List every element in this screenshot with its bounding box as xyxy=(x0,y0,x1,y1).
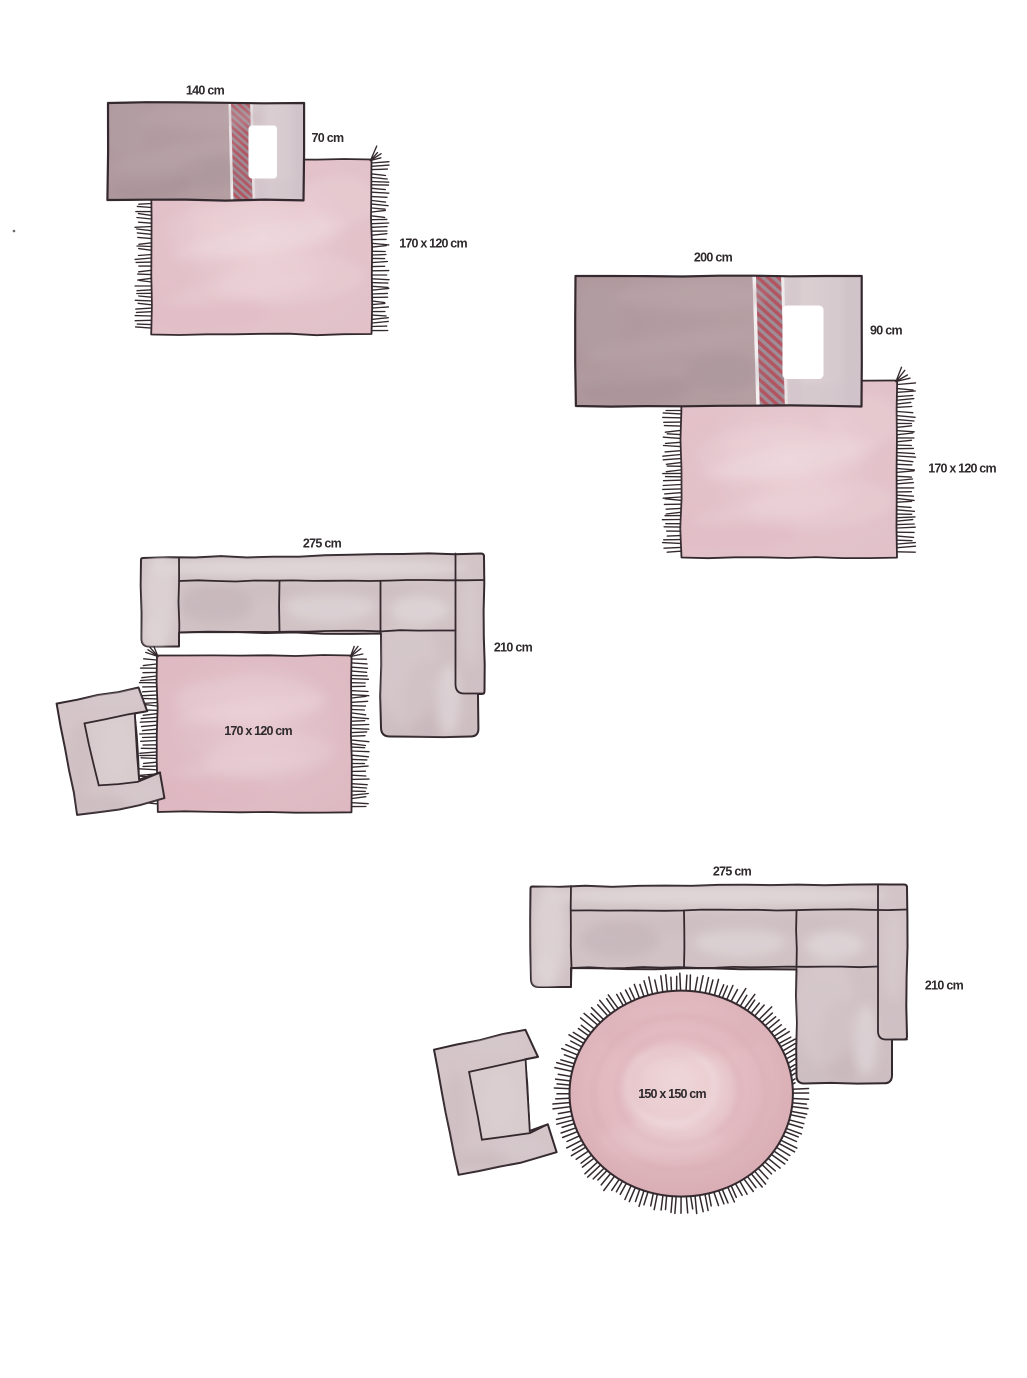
svg-text:200 cm: 200 cm xyxy=(694,250,733,264)
svg-text:210 cm: 210 cm xyxy=(494,640,533,654)
svg-text:70 cm: 70 cm xyxy=(312,131,345,145)
svg-text:275 cm: 275 cm xyxy=(713,864,752,878)
svg-text:275 cm: 275 cm xyxy=(303,536,342,550)
svg-text:170 x 120 cm: 170 x 120 cm xyxy=(399,236,467,250)
svg-text:90 cm: 90 cm xyxy=(870,323,903,337)
svg-text:170 x 120 cm: 170 x 120 cm xyxy=(224,724,292,738)
svg-text:140 cm: 140 cm xyxy=(186,83,225,97)
svg-text:210 cm: 210 cm xyxy=(925,978,964,992)
svg-text:170 x 120 cm: 170 x 120 cm xyxy=(928,461,996,475)
svg-text:150 x 150 cm: 150 x 150 cm xyxy=(638,1087,706,1101)
